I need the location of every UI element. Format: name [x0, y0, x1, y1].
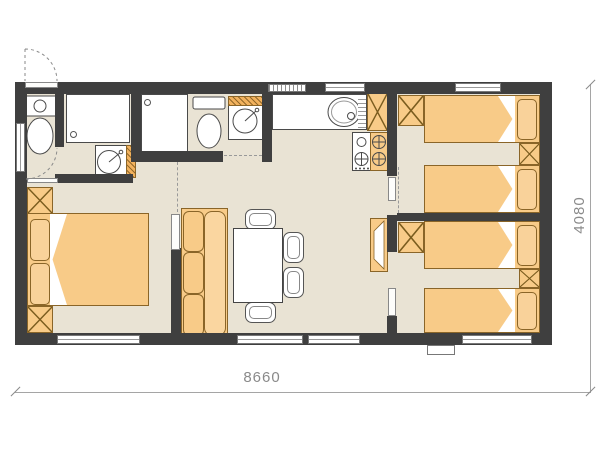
window-living-b — [308, 335, 360, 344]
entry-door-swing-arc — [22, 47, 60, 84]
fridge-cabinet-icon — [367, 93, 388, 131]
chair-icon — [283, 232, 304, 263]
pillow-icon — [30, 219, 50, 261]
bed-blanket-fold — [498, 222, 515, 268]
pillow-icon — [517, 225, 537, 266]
wall-bedrooms-west-c — [387, 316, 397, 333]
dining-table — [233, 228, 283, 303]
sofa-cushion — [183, 211, 204, 252]
dimension-line-width — [15, 392, 591, 393]
wall-bathroom-middle-south — [131, 151, 223, 162]
bed-blanket-fold — [498, 96, 515, 142]
wall-bedrooms-west-b — [387, 215, 397, 252]
nightstand-icon — [519, 143, 540, 165]
door-leaf-bedroom-bottom — [388, 288, 396, 316]
stove-burners-icon — [352, 132, 389, 171]
window-master — [57, 335, 140, 344]
dimension-height-label: 4080 — [571, 185, 589, 245]
area-divider-dash — [398, 167, 400, 213]
vanity-back-panel — [228, 96, 266, 106]
chair-icon — [245, 302, 276, 323]
washbasin-icon — [96, 147, 125, 177]
nightstand-icon — [519, 269, 540, 288]
pillow-icon — [517, 169, 537, 210]
chair-icon — [283, 267, 304, 298]
bed-blanket-fold — [50, 214, 67, 305]
dimension-width-label: 8660 — [212, 369, 312, 387]
bed-blanket-fold — [498, 289, 515, 332]
wardrobe-icon — [27, 187, 53, 214]
dimension-line-height — [590, 84, 591, 393]
wall-left — [15, 82, 27, 345]
shower-drain-icon — [144, 99, 151, 106]
window-hatched-kitchen — [268, 84, 306, 92]
door-arc-bathroom-front — [25, 147, 59, 181]
wall-toilet-divider — [55, 94, 64, 147]
window-bedroom-bottom — [462, 335, 532, 344]
door-swing-dash — [224, 155, 262, 157]
wall-master-east — [171, 248, 181, 333]
window-bathroom-left — [16, 123, 25, 172]
wall-bathroom-middle-east — [262, 94, 272, 162]
shower-drain-icon — [70, 131, 77, 138]
door-leaf-master — [171, 214, 180, 250]
door-leaf-bedroom-top — [388, 177, 396, 201]
wardrobe-icon — [27, 306, 53, 333]
pillow-icon — [30, 263, 50, 305]
toilet-icon — [192, 96, 226, 152]
wall-bedroom-divider — [397, 213, 540, 221]
sofa-seat — [204, 211, 226, 336]
wall-right — [540, 82, 552, 345]
drainboard-lines — [358, 97, 366, 128]
window-kitchen — [325, 83, 365, 92]
washbasin-icon — [231, 106, 262, 137]
entrance-step — [427, 345, 455, 355]
wardrobe-icon — [398, 222, 424, 253]
pillow-icon — [517, 292, 537, 330]
chair-icon — [245, 209, 276, 230]
sofa-cushion — [183, 252, 204, 294]
window-bedroom-top — [455, 83, 501, 92]
floor-plan: 8660 4080 — [0, 0, 600, 450]
pillow-icon — [517, 99, 537, 140]
sofa-cushion — [183, 294, 204, 336]
wall-bedrooms-west-a — [387, 94, 397, 176]
wardrobe-icon — [398, 95, 424, 126]
door-swing-dash — [177, 162, 179, 212]
window-living-a — [237, 335, 303, 344]
bed-blanket-fold — [498, 166, 515, 212]
cabinet-open-door — [371, 219, 387, 271]
wall-bathroom-front-south — [55, 174, 133, 183]
